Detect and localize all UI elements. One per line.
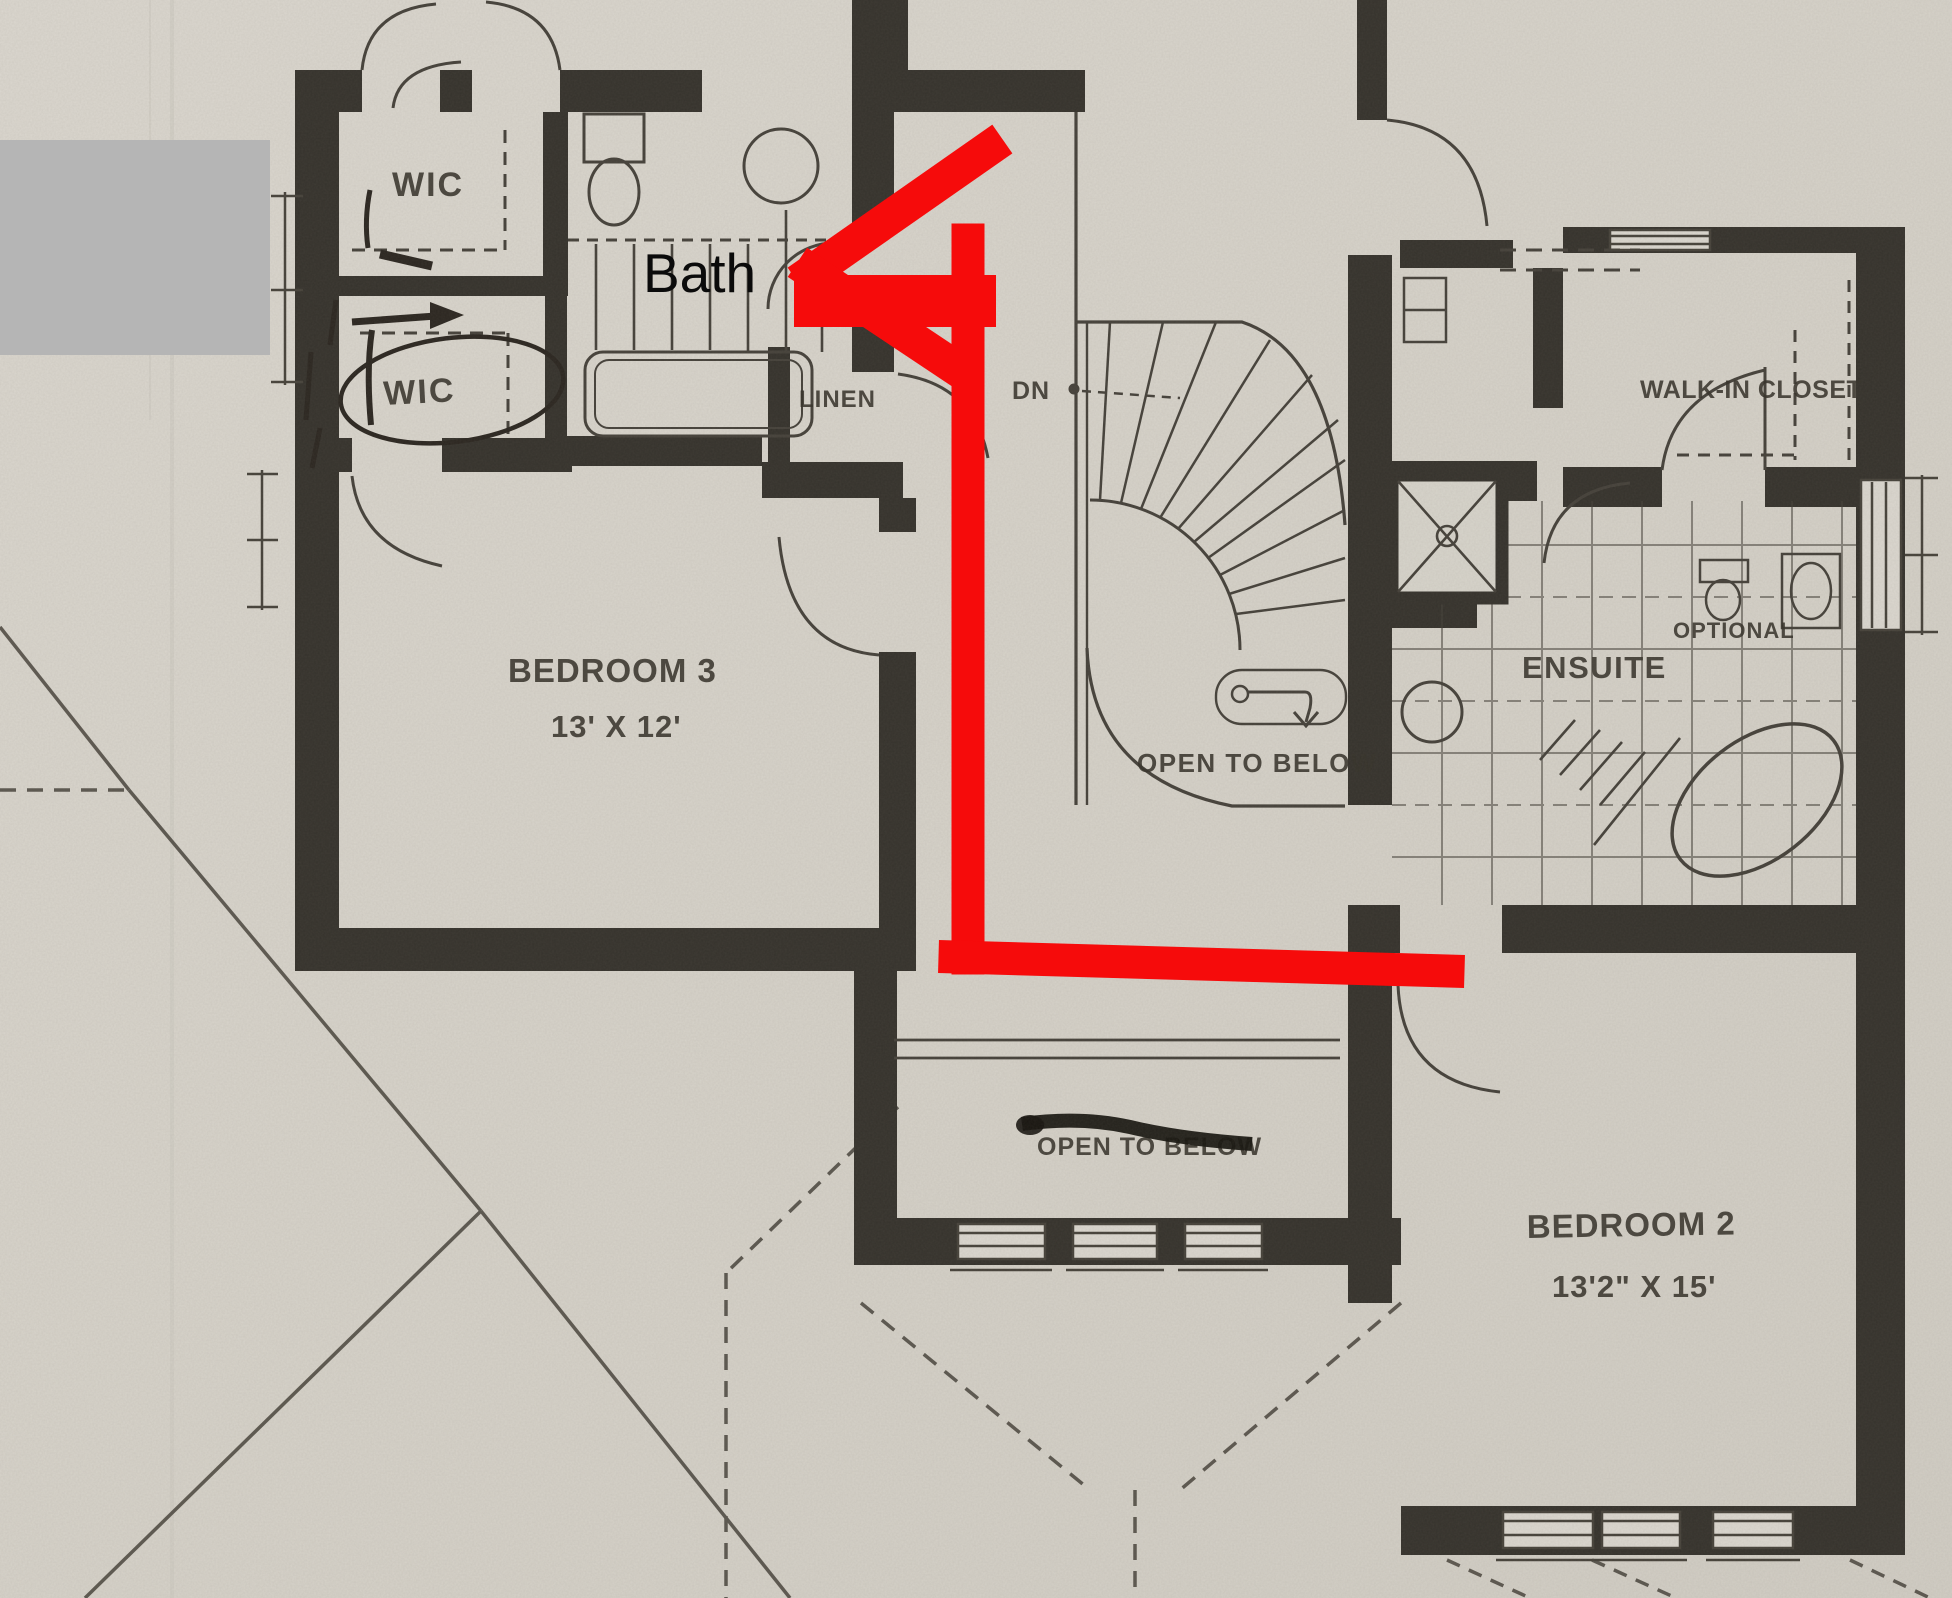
route-line-horizontal (955, 957, 1448, 971)
floorplan-scan: WIC WIC LINEN DN OPEN TO BELOW BEDROOM 3… (0, 0, 1952, 1598)
bath-overlay-label: Bath (643, 242, 756, 304)
floorplan-svg: WIC WIC LINEN DN OPEN TO BELOW BEDROOM 3… (0, 0, 1952, 1598)
redaction-box (0, 140, 270, 355)
